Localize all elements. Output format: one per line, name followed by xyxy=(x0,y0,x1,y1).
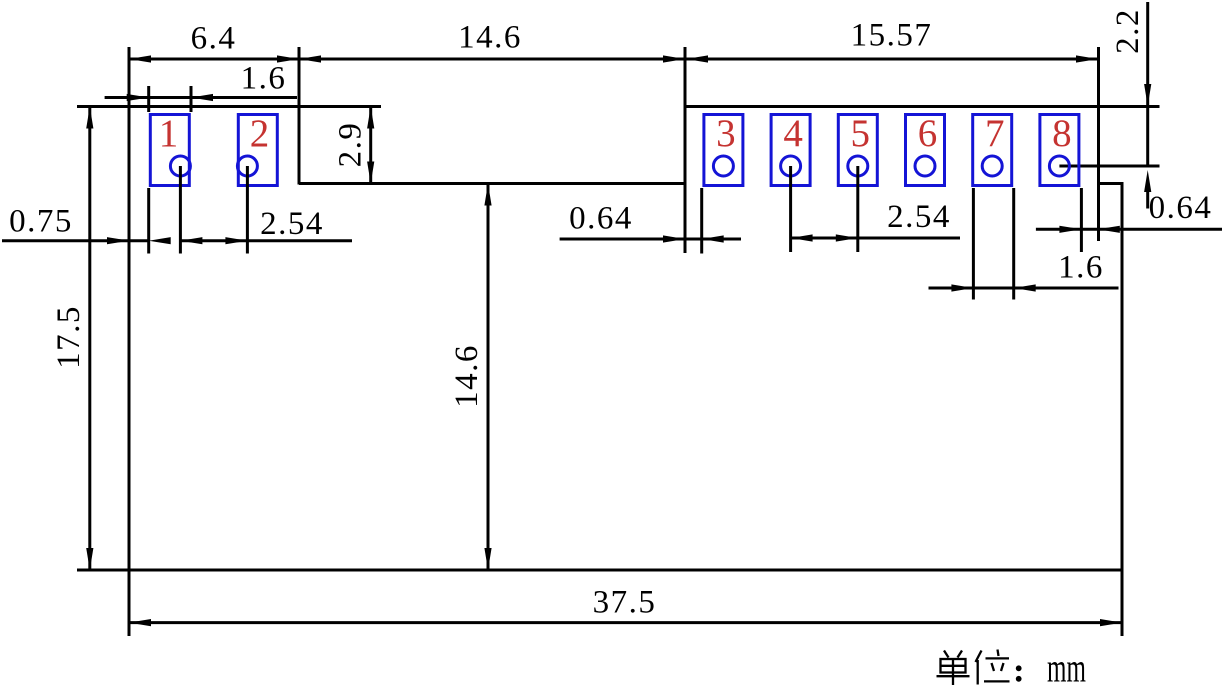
svg-text:37.5: 37.5 xyxy=(593,585,657,621)
svg-text:5: 5 xyxy=(851,112,871,155)
svg-text:6.4: 6.4 xyxy=(191,21,237,57)
svg-text:mm: mm xyxy=(1047,646,1086,691)
svg-text:2.54: 2.54 xyxy=(260,206,324,242)
svg-text:0.64: 0.64 xyxy=(569,201,633,237)
svg-text:2: 2 xyxy=(250,112,270,155)
svg-text:14.6: 14.6 xyxy=(449,344,485,408)
svg-text:2.9: 2.9 xyxy=(333,122,369,168)
svg-text:1.6: 1.6 xyxy=(241,61,287,97)
svg-text:1: 1 xyxy=(159,112,179,155)
svg-text:0.64: 0.64 xyxy=(1149,190,1213,226)
svg-text:8: 8 xyxy=(1052,112,1072,155)
svg-text:17.5: 17.5 xyxy=(51,305,87,369)
svg-text:2.54: 2.54 xyxy=(887,199,951,235)
svg-text:2.2: 2.2 xyxy=(1110,8,1146,54)
svg-text:1.6: 1.6 xyxy=(1058,250,1104,286)
svg-text:14.6: 14.6 xyxy=(458,20,522,56)
svg-text:0.75: 0.75 xyxy=(9,204,73,240)
svg-text:4: 4 xyxy=(783,112,803,155)
svg-text:15.57: 15.57 xyxy=(851,18,933,54)
svg-text:7: 7 xyxy=(985,112,1005,155)
svg-text:3: 3 xyxy=(716,112,736,155)
svg-text:6: 6 xyxy=(918,112,938,155)
